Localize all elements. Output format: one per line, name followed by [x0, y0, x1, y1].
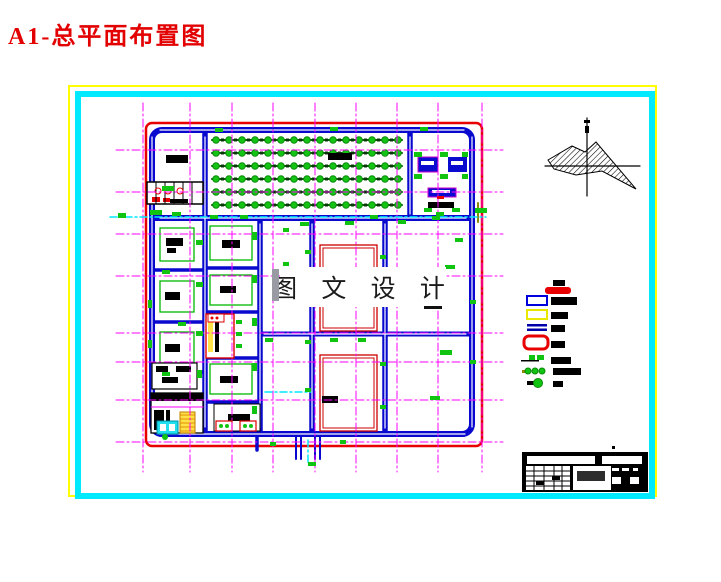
tree-icon — [330, 163, 337, 170]
shrub-mark — [196, 282, 203, 287]
tree-icon — [369, 202, 376, 209]
building — [216, 421, 232, 431]
building — [163, 198, 170, 202]
building — [320, 355, 377, 431]
shrub-mark — [452, 208, 460, 212]
shrub-mark — [475, 208, 487, 213]
sheet-dot — [612, 446, 615, 449]
title-block-cell — [612, 477, 621, 484]
shrub-mark — [436, 212, 444, 216]
shrub-mark — [370, 215, 378, 219]
shrub-mark — [252, 363, 257, 371]
shrub-mark — [240, 215, 248, 219]
tree-icon — [213, 137, 220, 144]
tree-tick — [364, 165, 367, 168]
title-block-cell — [622, 468, 629, 471]
shrub-mark — [340, 440, 346, 444]
shrub-mark — [305, 388, 311, 392]
building — [167, 248, 176, 253]
shrub-mark — [252, 275, 257, 283]
tree-tick — [247, 139, 250, 142]
tree-rows — [212, 137, 402, 209]
tree-icon — [278, 176, 285, 183]
tree-tick — [377, 178, 380, 181]
tree-icon — [395, 176, 402, 183]
tree-tick — [299, 152, 302, 155]
tree-tick — [325, 178, 328, 181]
tree-tick — [338, 139, 341, 142]
legend-label — [551, 297, 577, 305]
title-block-cell — [527, 456, 595, 464]
building — [160, 424, 166, 431]
tree-icon — [356, 137, 363, 144]
building — [165, 292, 180, 300]
tree-tick — [234, 165, 237, 168]
cad-circle — [539, 368, 545, 374]
north-arrow-icon — [545, 118, 640, 196]
tree-icon — [369, 176, 376, 183]
title-block-cell — [633, 468, 638, 471]
shrub-mark — [432, 216, 440, 220]
shrub-mark — [380, 405, 386, 409]
legend-label — [553, 368, 581, 375]
tree-icon — [304, 163, 311, 170]
tree-icon — [252, 176, 259, 183]
tree-icon — [382, 150, 389, 157]
tree-icon — [278, 163, 285, 170]
tree-tick — [351, 139, 354, 142]
shrub-mark — [308, 462, 316, 466]
building — [428, 202, 454, 208]
tree-icon — [265, 202, 272, 209]
shrub-mark — [330, 127, 338, 131]
tree-tick — [221, 139, 224, 142]
tree-tick — [286, 165, 289, 168]
tree-tick — [390, 139, 393, 142]
tree-icon — [291, 163, 298, 170]
tree-tick — [221, 165, 224, 168]
tree-tick — [234, 139, 237, 142]
legend-label — [551, 357, 571, 364]
shrub-mark — [178, 322, 186, 326]
cad-rect — [527, 310, 547, 319]
shrub-mark — [330, 338, 338, 342]
building — [162, 377, 178, 383]
cad-rect — [527, 329, 547, 332]
tree-icon — [369, 150, 376, 157]
building — [165, 344, 180, 352]
tree-icon — [226, 163, 233, 170]
tree-tick — [286, 139, 289, 142]
shrub-mark — [440, 174, 448, 179]
tree-tick — [299, 204, 302, 207]
shrub-mark — [236, 344, 242, 348]
detail-circle — [219, 424, 223, 428]
shrub-mark — [414, 174, 422, 179]
tree-tick — [286, 178, 289, 181]
shrub-mark — [252, 406, 257, 414]
tree-icon — [317, 163, 324, 170]
tree-tick — [260, 178, 263, 181]
compass-mark — [584, 120, 590, 123]
tree-icon — [239, 137, 246, 144]
detail-circle — [243, 424, 247, 428]
tree-tick — [247, 204, 250, 207]
tree-icon — [369, 137, 376, 144]
tree-icon — [291, 202, 298, 209]
tree-icon — [252, 150, 259, 157]
tree-icon — [356, 176, 363, 183]
building — [215, 320, 219, 352]
tree-icon — [213, 150, 220, 157]
tree-tick — [390, 152, 393, 155]
detail-circle — [225, 424, 229, 428]
shrub-mark — [162, 186, 174, 191]
tree-icon — [369, 163, 376, 170]
tree-icon — [278, 202, 285, 209]
title-block-cell-dark — [552, 476, 560, 480]
tree-tick — [364, 204, 367, 207]
tree-icon — [265, 163, 272, 170]
cad-rect — [527, 324, 547, 327]
shrub-mark — [148, 340, 152, 348]
building — [451, 161, 463, 165]
legend-item-red-rounded — [524, 336, 565, 349]
cad-rect — [527, 296, 547, 305]
shrub-mark — [424, 208, 432, 212]
tree-icon — [317, 150, 324, 157]
shrub-mark — [470, 300, 476, 304]
legend-item-blue-outline — [527, 296, 577, 305]
building — [156, 366, 168, 372]
tree-icon — [226, 176, 233, 183]
building — [170, 199, 188, 203]
shrub-mark — [430, 396, 440, 400]
detail-circle — [249, 424, 253, 428]
tree-tick — [390, 204, 393, 207]
shrub-mark — [252, 232, 257, 240]
tree-tick — [247, 178, 250, 181]
tree-tick — [325, 204, 328, 207]
tree-tick — [351, 204, 354, 207]
cad-rect — [553, 280, 565, 286]
compass-mark — [585, 126, 589, 133]
shrub-mark — [265, 338, 273, 342]
tree-tick — [221, 152, 224, 155]
tree-tick — [377, 165, 380, 168]
building — [222, 240, 240, 248]
tree-icon — [330, 202, 337, 209]
tree-icon — [382, 163, 389, 170]
building — [176, 366, 191, 372]
legend-item-parcel-red-bar — [545, 280, 571, 294]
tree-icon — [382, 202, 389, 209]
tree-tick — [299, 178, 302, 181]
tree-tick — [325, 152, 328, 155]
cad-rect — [524, 336, 548, 349]
title-block — [522, 446, 648, 492]
shrub-mark — [283, 262, 289, 266]
legend-item-shrub-row — [522, 368, 581, 375]
tree-tick — [260, 152, 263, 155]
tree-icon — [304, 176, 311, 183]
tree-tick — [351, 165, 354, 168]
tree-icon — [291, 150, 298, 157]
tree-icon — [356, 202, 363, 209]
building — [208, 320, 213, 352]
shrub-mark — [440, 350, 452, 355]
building — [220, 286, 236, 293]
tree-icon — [382, 137, 389, 144]
cad-circle — [532, 368, 538, 374]
tree-icon — [278, 137, 285, 144]
tree-icon — [304, 137, 311, 144]
tree-tick — [338, 165, 341, 168]
tree-tick — [247, 165, 250, 168]
tree-tick — [221, 204, 224, 207]
shrub-mark — [358, 338, 366, 342]
legend-item-yellow-outline — [527, 310, 568, 319]
tree-tick — [260, 204, 263, 207]
shrub-mark — [414, 152, 422, 157]
building — [166, 238, 183, 246]
title-block-cell — [630, 477, 639, 484]
tree-icon — [213, 176, 220, 183]
tree-tick — [364, 139, 367, 142]
building — [166, 155, 188, 163]
shrub-mark — [196, 240, 203, 245]
tree-tick — [338, 204, 341, 207]
shrub-mark — [305, 340, 311, 344]
tree-tick — [390, 165, 393, 168]
tree-icon — [330, 137, 337, 144]
tree-tick — [260, 139, 263, 142]
cad-rect — [545, 287, 571, 294]
tree-tick — [338, 178, 341, 181]
tree-icon — [239, 163, 246, 170]
shrub-mark — [462, 174, 468, 179]
tree-tick — [247, 152, 250, 155]
tree-icon — [343, 176, 350, 183]
tree-icon — [343, 163, 350, 170]
tree-icon — [356, 163, 363, 170]
tree-icon — [213, 202, 220, 209]
legend-label — [553, 381, 563, 387]
tree-icon — [395, 137, 402, 144]
tree-icon — [239, 176, 246, 183]
title-block-cell-dark — [536, 481, 544, 485]
shrub-mark — [172, 212, 181, 216]
tree-tick — [377, 152, 380, 155]
shrub-mark — [440, 152, 448, 157]
shrub-mark — [210, 215, 218, 219]
tree-icon — [343, 202, 350, 209]
shrub-mark — [236, 320, 242, 324]
tree-icon — [291, 176, 298, 183]
shrub-mark — [398, 220, 406, 224]
building — [328, 153, 352, 160]
shrub-mark — [162, 372, 170, 376]
shrub-mark — [270, 442, 276, 446]
tree-tick — [286, 204, 289, 207]
cad-rect — [537, 355, 544, 360]
shrub-mark — [380, 255, 386, 259]
building — [323, 358, 374, 428]
shrub-mark — [462, 152, 468, 157]
tree-icon — [330, 176, 337, 183]
shrub-mark — [455, 238, 463, 242]
tree-tick — [234, 204, 237, 207]
legend — [521, 280, 581, 388]
tree-icon — [304, 202, 311, 209]
shrub-mark — [305, 250, 311, 254]
legend-label — [551, 312, 568, 319]
tree-tick — [377, 139, 380, 142]
shrub-mark — [252, 318, 257, 326]
tree-icon — [304, 150, 311, 157]
tree-icon — [239, 202, 246, 209]
cad-circle — [534, 379, 543, 388]
shrub-mark — [380, 362, 386, 366]
tree-icon — [395, 163, 402, 170]
building — [228, 414, 250, 421]
building — [421, 161, 434, 165]
tree-tick — [390, 178, 393, 181]
tree-tick — [221, 178, 224, 181]
tree-icon — [213, 163, 220, 170]
tree-tick — [260, 165, 263, 168]
tree-tick — [286, 152, 289, 155]
tree-icon — [252, 163, 259, 170]
tree-icon — [226, 137, 233, 144]
shrub-mark — [283, 228, 289, 232]
tree-icon — [395, 202, 402, 209]
tree-tick — [299, 165, 302, 168]
legend-item-tree — [527, 379, 563, 388]
tree-icon — [395, 150, 402, 157]
cad-circle — [525, 368, 531, 374]
detail-circle — [211, 317, 214, 320]
shrub-mark — [420, 127, 428, 131]
shrub-mark — [300, 222, 309, 226]
tree-icon — [226, 150, 233, 157]
tree-icon — [317, 137, 324, 144]
shrub-mark — [148, 300, 152, 308]
tree-icon — [317, 202, 324, 209]
tree-icon — [291, 137, 298, 144]
tree-tick — [377, 204, 380, 207]
building — [220, 376, 238, 383]
legend-item-hedge — [521, 355, 571, 364]
building — [240, 421, 256, 431]
tree-icon — [343, 137, 350, 144]
tree-tick — [299, 139, 302, 142]
title-block-cell — [602, 456, 642, 464]
building — [169, 424, 175, 431]
tree-icon — [239, 150, 246, 157]
tree-icon — [265, 176, 272, 183]
tree-icon — [252, 137, 259, 144]
tree-tick — [364, 178, 367, 181]
shrub-mark — [197, 370, 202, 378]
shrub-mark — [470, 360, 476, 364]
tree-icon — [317, 176, 324, 183]
title-block-cell — [612, 468, 619, 471]
detail-circle — [216, 317, 219, 320]
tree-icon — [356, 150, 363, 157]
cad-rect — [521, 360, 539, 362]
cad-rect — [529, 355, 535, 360]
shrub-mark — [196, 331, 203, 336]
shrub-mark — [150, 210, 162, 215]
tree-icon — [226, 202, 233, 209]
tree-tick — [325, 165, 328, 168]
shrub-mark — [345, 221, 354, 225]
tree-tick — [234, 178, 237, 181]
watermark-text: 图 文 设 计 — [272, 269, 454, 305]
title-block-text — [577, 471, 605, 481]
screenshot-root: A1-总平面布置图 图 文 设 计 — [0, 0, 721, 582]
shrub-mark — [215, 128, 223, 132]
tree-tick — [234, 152, 237, 155]
legend-item-road-section — [527, 324, 565, 332]
detail-circle — [162, 434, 168, 440]
shrub-mark — [162, 270, 170, 274]
tree-tick — [351, 178, 354, 181]
tree-icon — [252, 202, 259, 209]
tree-tick — [364, 152, 367, 155]
tree-icon — [278, 150, 285, 157]
cad-rect — [527, 381, 534, 385]
tree-icon — [382, 176, 389, 183]
legend-label — [551, 341, 565, 348]
tree-icon — [265, 137, 272, 144]
shrub-mark — [118, 213, 126, 218]
tree-tick — [325, 139, 328, 142]
legend-label — [551, 325, 565, 332]
tree-icon — [265, 150, 272, 157]
watermark: 图 文 设 计 — [280, 267, 446, 307]
shrub-mark — [236, 332, 242, 336]
